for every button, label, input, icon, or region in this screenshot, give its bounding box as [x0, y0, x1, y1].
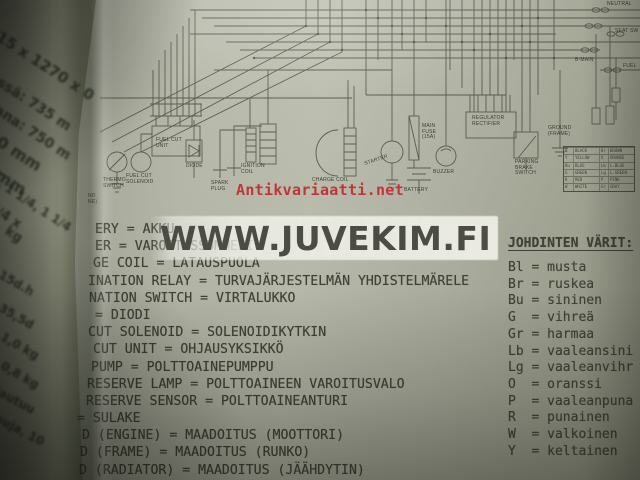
wire-color-legend: JOHDINTEN VÄRIT: Bl = mustaBr = ruskeaBu…: [508, 236, 633, 460]
color-code-row: YYELLOW OORANGE: [564, 154, 634, 161]
wire-color-entry: Y = keltainen: [508, 444, 633, 461]
diagram-component-label: THERMO SWITCH: [103, 178, 126, 189]
wire-color-entry: Lb = vaaleansini: [508, 344, 633, 361]
diagram-component-label: FUEL CUT SOLENOID: [126, 174, 153, 185]
diagram-component-label: BATTERY: [404, 188, 428, 194]
diagram-component-label: MAIN FUSE (15A): [422, 124, 436, 141]
diagram-component-label: DIODE: [186, 164, 203, 170]
wire-color-legend-heading: JOHDINTEN VÄRIT:: [508, 236, 633, 252]
book-page-photo: 815 x 1270 x 0dessä: 735 makana: 750 m90…: [0, 0, 640, 480]
wire-color-entry: Lg = vaaleanvihr: [508, 360, 633, 377]
juvekim-watermark: WWW.JUVEKIM.FI: [160, 220, 491, 258]
diagram-component-label: GROUND (FRAME): [548, 126, 571, 137]
diagram-color-code-table: BBLACK BrBROWN YYELLOW OORANGE BuBLUE Lb…: [563, 146, 635, 192]
diagram-component-label: NEUTRAL: [607, 2, 632, 8]
wire-color-entry: Bl = musta: [508, 260, 633, 277]
wire-color-entry: R = punainen: [508, 410, 633, 427]
color-code-row: BBLACK BrBROWN: [564, 147, 634, 154]
wire-color-entry: Gr = harmaa: [508, 327, 633, 344]
diagram-component-label: FUEL: [623, 64, 637, 70]
diagram-component-label: SPARK PLUG: [211, 181, 229, 192]
diagram-component-label: SEAT SW: [615, 29, 638, 35]
wire-color-entry: W = valkoinen: [508, 427, 633, 444]
color-code-row: RRED PPINK: [564, 176, 634, 183]
antikvariaatti-watermark: Antikvariaatti.net: [236, 181, 404, 199]
diagram-component-label: B-MAIN: [575, 58, 594, 64]
diagram-component-label: FUEL CUT UNIT: [156, 138, 182, 149]
diagram-component-label: PARKING BRAKE SWITCH: [515, 160, 539, 177]
color-code-row: WWHITE GrGRAY: [564, 183, 634, 190]
wire-color-entry: G = vihreä: [508, 310, 633, 327]
wire-color-entry: P = vaaleanpuna: [508, 394, 633, 411]
wire-color-entry: O = oranssi: [508, 377, 633, 394]
color-code-row: BuBLUE LbL.BLUE: [564, 162, 634, 169]
wire-color-entry: Bu = sininen: [508, 293, 633, 310]
diagram-component-label: BUZZER: [433, 170, 454, 176]
wire-color-entry: Br = ruskea: [508, 277, 633, 294]
color-code-row: GGREEN LgL.GREEN: [564, 169, 634, 176]
diagram-component-label: IGNITION COIL: [241, 164, 265, 175]
wire-color-entries: Bl = mustaBr = ruskeaBu = sininenG = vih…: [508, 260, 633, 460]
diagram-component-label: ND NE): [88, 194, 97, 205]
diagram-component-label: REGULATOR RECTIFIER: [472, 116, 504, 127]
translation-line: D (RADIATOR) = MAADOITUS (JÄÄHDYTIN): [79, 462, 640, 479]
